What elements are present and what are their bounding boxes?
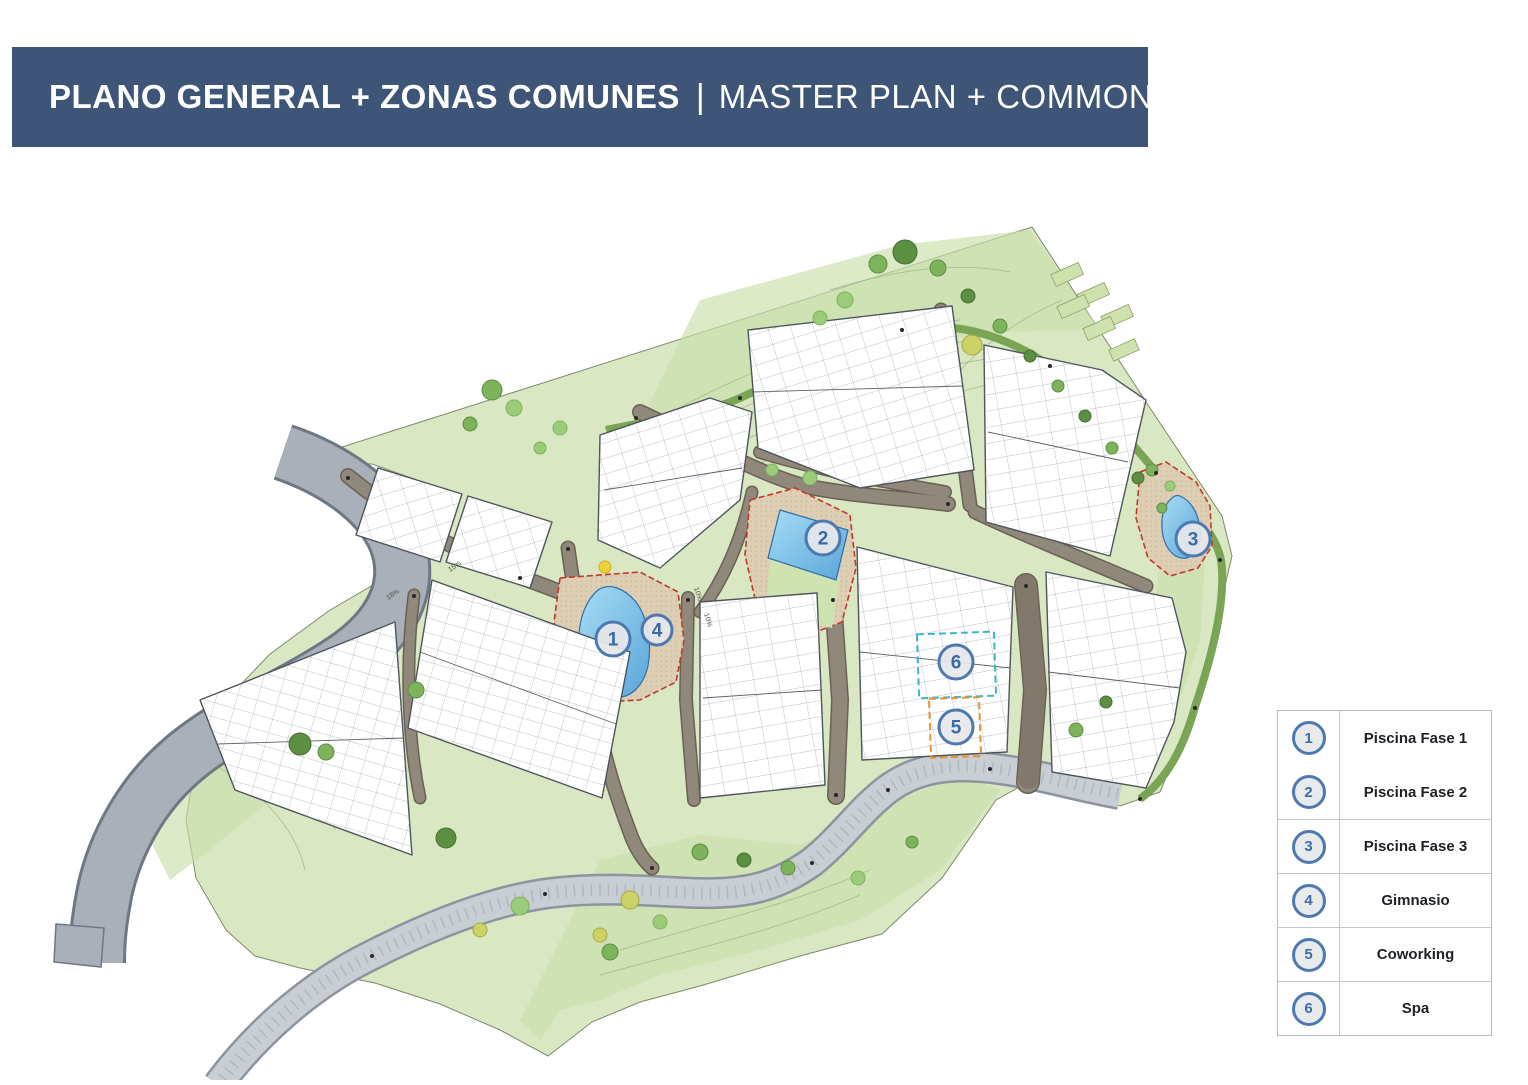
legend-row-coworking: 5 Coworking: [1278, 927, 1491, 981]
legend-row-piscina-fase-3: 3 Piscina Fase 3: [1278, 819, 1491, 873]
legend-label: Piscina Fase 3: [1340, 820, 1491, 873]
page-title-en: MASTER PLAN + COMMON AREAS: [719, 78, 1276, 116]
legend-circle-5: 5: [1292, 938, 1326, 972]
legend-number-cell: 4: [1278, 874, 1340, 927]
page-title-es: PLANO GENERAL + ZONAS COMUNES: [49, 78, 680, 116]
svg-text:4: 4: [652, 621, 663, 642]
svg-text:1: 1: [608, 630, 619, 651]
legend-number-cell: 3: [1278, 820, 1340, 873]
legend-number-cell: 5: [1278, 928, 1340, 981]
legend-number-cell: 6: [1278, 982, 1340, 1035]
marker-coworking: 5: [939, 710, 973, 744]
legend-label: Spa: [1340, 982, 1491, 1035]
svg-text:5: 5: [951, 718, 962, 739]
legend-number-cell: 2: [1278, 765, 1340, 819]
marker-piscina-fase-2: 2: [806, 521, 840, 555]
marker-piscina-fase-1: 1: [596, 622, 630, 656]
header-banner: PLANO GENERAL + ZONAS COMUNES | MASTER P…: [12, 47, 1148, 147]
legend-circle-3: 3: [1292, 830, 1326, 864]
svg-text:2: 2: [818, 529, 829, 550]
legend-label: Piscina Fase 1: [1340, 711, 1491, 765]
legend-label: Coworking: [1340, 928, 1491, 981]
legend-row-piscina-fase-2: 2 Piscina Fase 2: [1278, 765, 1491, 819]
road-hammerhead-end: [54, 924, 104, 967]
legend-label: Gimnasio: [1340, 874, 1491, 927]
legend-circle-6: 6: [1292, 992, 1326, 1026]
legend-table: 1 Piscina Fase 1 2 Piscina Fase 2 3 Pisc…: [1277, 710, 1492, 1036]
legend-circle-1: 1: [1292, 721, 1326, 755]
marker-spa: 6: [939, 645, 973, 679]
svg-text:6: 6: [951, 653, 962, 674]
title-separator: |: [696, 78, 705, 117]
legend-row-gimnasio: 4 Gimnasio: [1278, 873, 1491, 927]
legend-row-piscina-fase-1: 1 Piscina Fase 1: [1278, 711, 1491, 765]
legend-row-spa: 6 Spa: [1278, 981, 1491, 1035]
block-c1: [700, 593, 825, 798]
legend-label: Piscina Fase 2: [1340, 765, 1491, 819]
yellow-plant-icon: [599, 561, 611, 573]
svg-text:3: 3: [1188, 530, 1199, 551]
legend-number-cell: 1: [1278, 711, 1340, 765]
legend-circle-4: 4: [1292, 884, 1326, 918]
marker-piscina-fase-3: 3: [1176, 522, 1210, 556]
legend-circle-2: 2: [1292, 775, 1326, 809]
marker-gimnasio: 4: [642, 615, 672, 645]
